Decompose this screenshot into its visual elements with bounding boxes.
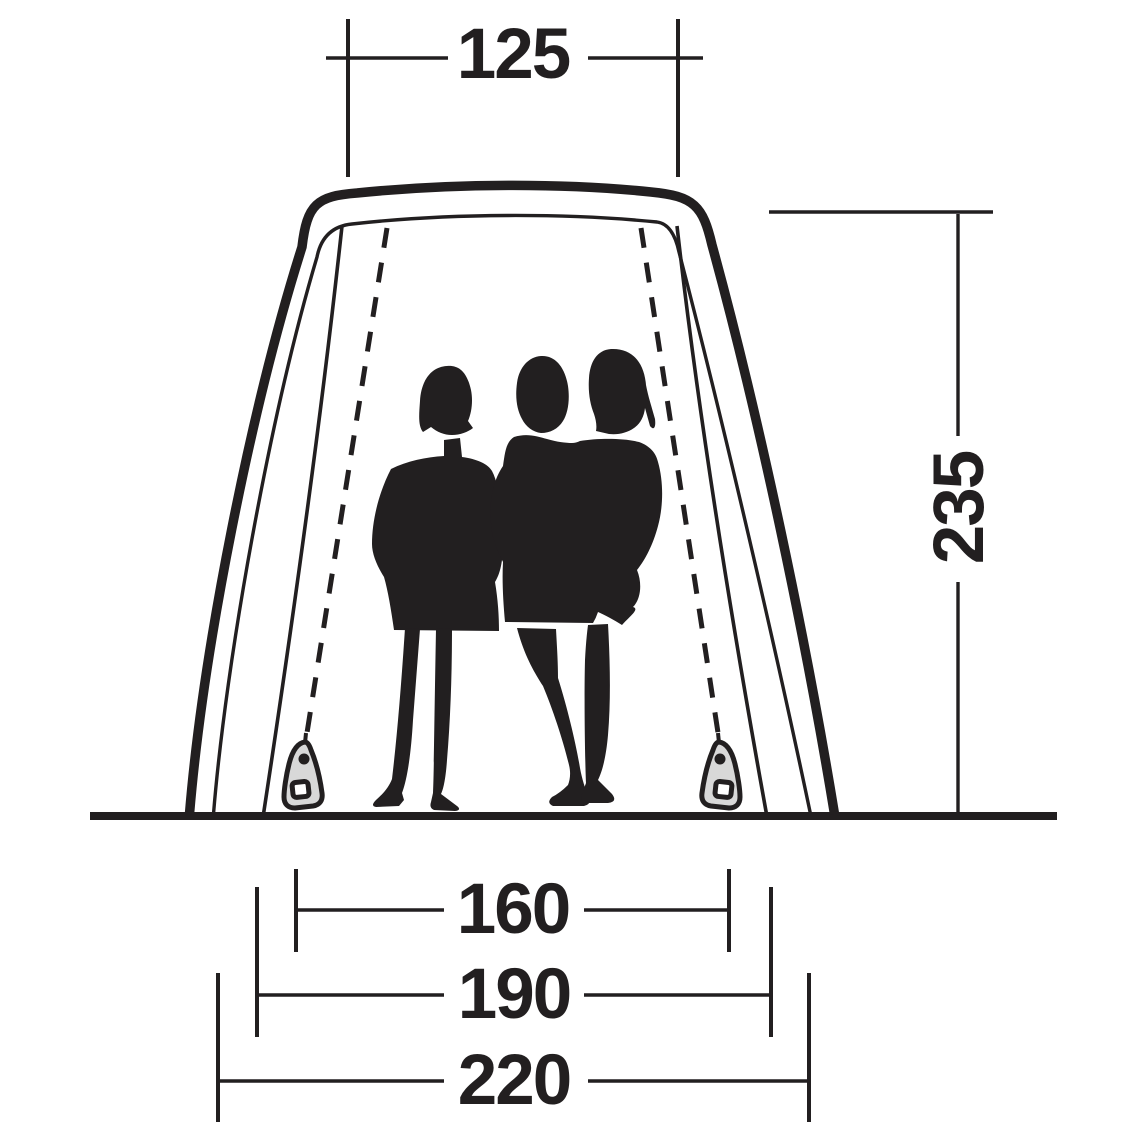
- figure-adult-right: [491, 349, 663, 806]
- figure-adult-left: [372, 366, 503, 811]
- door-zip-dashed-left: [307, 228, 388, 736]
- diagram-canvas: 125 235 160 190 220: [0, 0, 1145, 1145]
- adult-left-body: [372, 438, 503, 631]
- adult-right-leg-front: [517, 628, 590, 806]
- zipper-pull-right-icon: [702, 733, 740, 808]
- dim-height: 235: [769, 212, 999, 813]
- adult-left-head: [419, 366, 473, 435]
- zipper-pull-left-icon: [284, 733, 322, 808]
- adult-right-leg-back: [581, 624, 614, 803]
- adult-right-head: [589, 349, 656, 434]
- dim-outer-base-width-label: 220: [458, 1041, 570, 1120]
- figure-child-head: [516, 356, 569, 433]
- dim-top-width-label: 125: [457, 15, 570, 94]
- dim-top-width: 125: [326, 15, 703, 177]
- inner-tent-right-edge: [677, 226, 767, 814]
- dim-inner-floor-width-label: 160: [457, 870, 569, 949]
- dim-height-label: 235: [920, 451, 999, 564]
- adult-right-body: [491, 435, 663, 625]
- adult-left-leg-right: [430, 628, 459, 811]
- dim-mid-width-label: 190: [458, 955, 570, 1034]
- dim-inner-floor-width: 160: [296, 869, 729, 952]
- adult-left-leg-left: [373, 628, 420, 807]
- figures: [372, 349, 662, 811]
